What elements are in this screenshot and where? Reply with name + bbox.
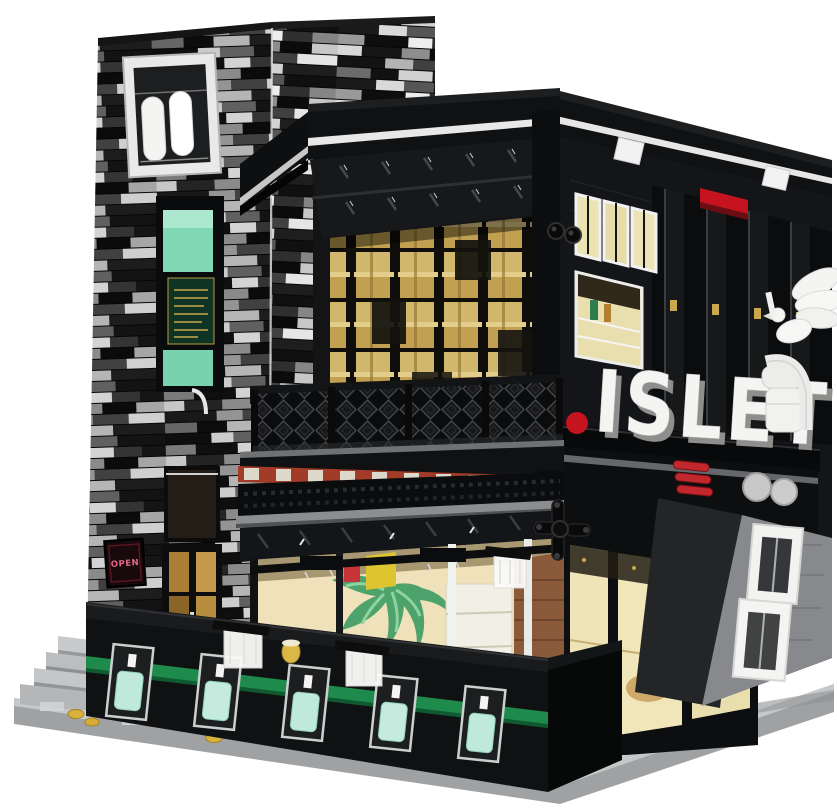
corner-rivet: [565, 227, 581, 243]
beer-mug: [282, 640, 300, 664]
unlit-pane: [455, 240, 491, 280]
menu-board: [168, 278, 214, 344]
upper-door-window: [166, 468, 218, 540]
unlit-pane: [498, 330, 534, 376]
open-sign-label: OPEN: [111, 558, 140, 570]
display-cup: [141, 96, 166, 161]
bottle-niche: [458, 686, 505, 762]
open-sign: OPEN: [104, 539, 145, 588]
vent-grille-red: [670, 460, 715, 496]
side-wall: [635, 498, 832, 708]
building-illustration: OPEN I: [0, 0, 837, 811]
product-photo: OPEN I: [0, 0, 837, 811]
display-window: [123, 53, 221, 178]
display-cup: [169, 91, 194, 156]
sign-red-dot: [566, 412, 588, 434]
bottle-niche: [106, 644, 153, 720]
corner-rivet: [548, 223, 564, 239]
unlit-pane: [372, 300, 406, 344]
bottle-niche: [282, 665, 329, 741]
menu-window: [156, 196, 224, 414]
